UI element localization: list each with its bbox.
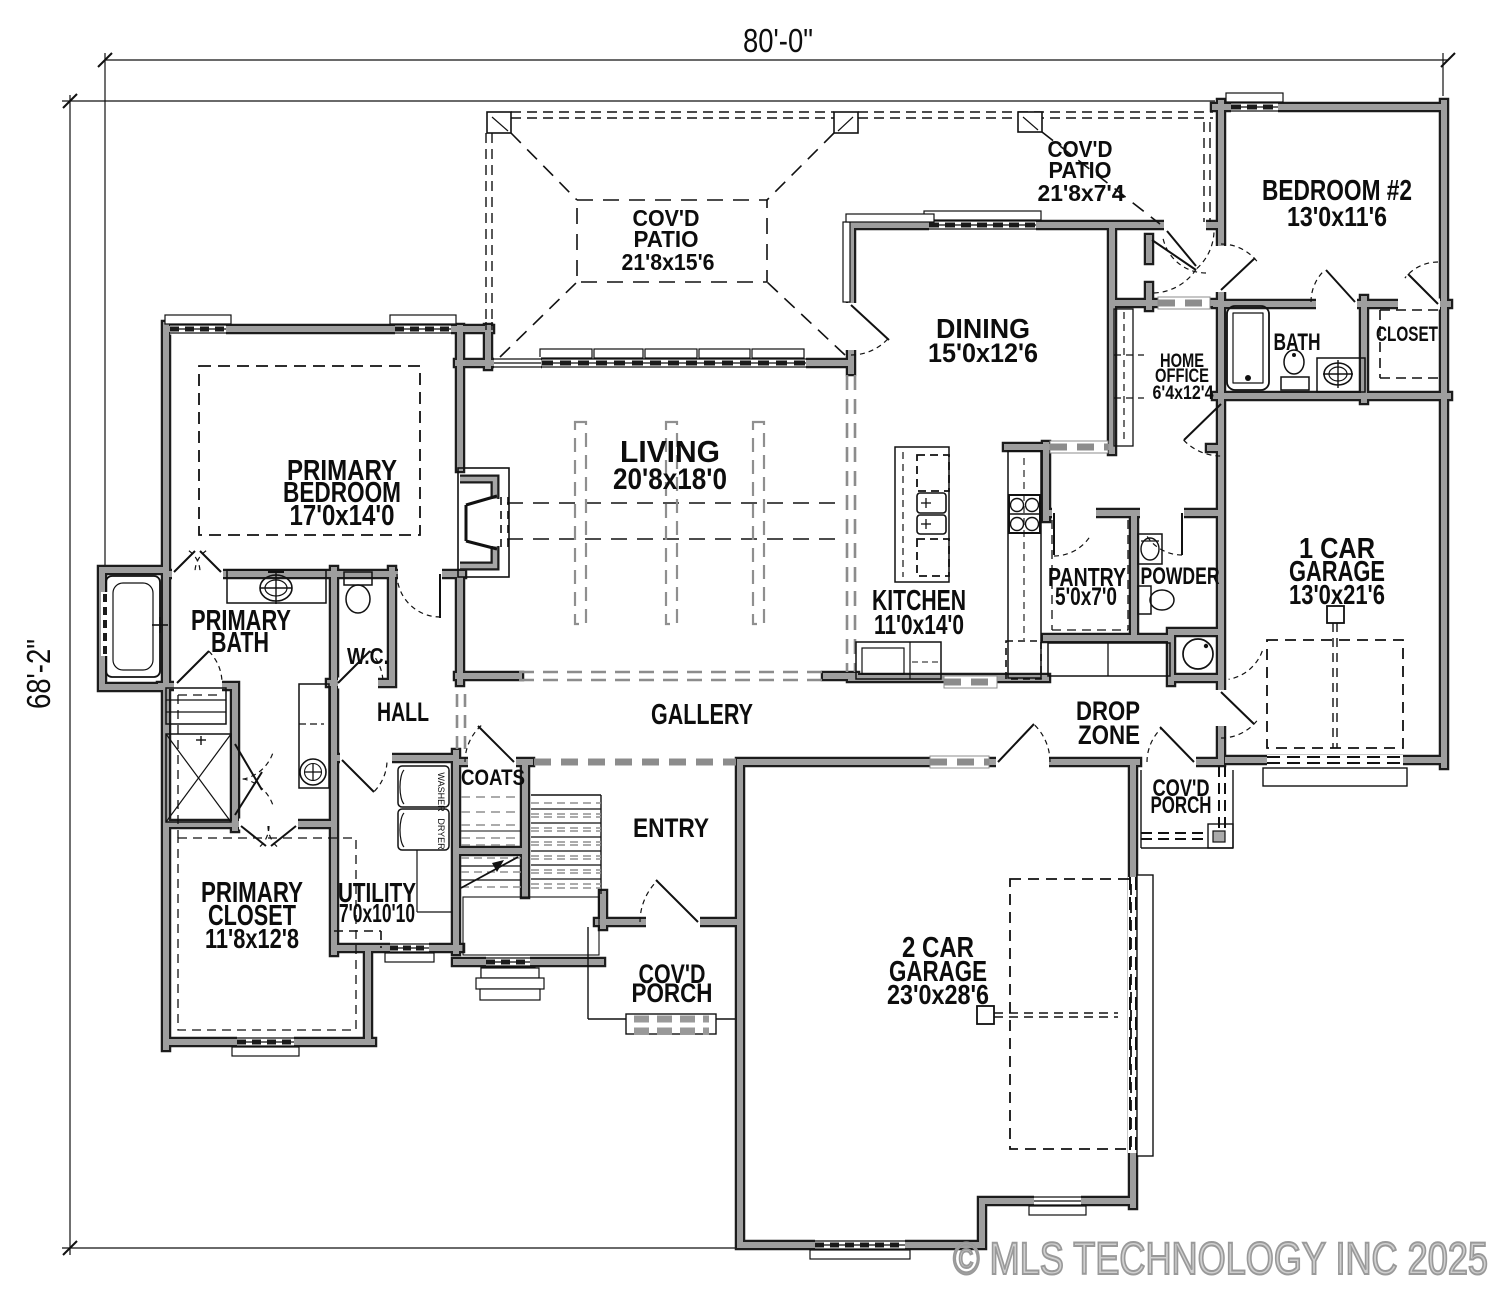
svg-text:WASHER: WASHER [436,772,446,812]
svg-text:POWDER: POWDER [1141,563,1220,590]
svg-text:PORCH: PORCH [1151,792,1212,819]
svg-text:68'-2": 68'-2" [20,639,57,709]
svg-text:BATH: BATH [211,627,269,659]
svg-text:COATS: COATS [461,765,525,790]
svg-text:13'0x21'6: 13'0x21'6 [1289,579,1385,610]
svg-text:DRYER: DRYER [436,818,446,850]
svg-text:GALLERY: GALLERY [651,699,753,731]
svg-text:80'-0": 80'-0" [743,22,813,59]
svg-text:21'8x15'6: 21'8x15'6 [622,249,715,275]
svg-text:HALL: HALL [377,697,429,727]
svg-text:ENTRY: ENTRY [633,813,709,843]
svg-text:W.C.: W.C. [347,643,389,669]
svg-text:PORCH: PORCH [632,978,713,1008]
svg-text:13'0x11'6: 13'0x11'6 [1287,201,1387,232]
svg-text:7'0x10'10: 7'0x10'10 [339,898,415,928]
svg-text:15'0x12'6: 15'0x12'6 [928,338,1038,368]
svg-text:© MLS TECHNOLOGY INC 2025: © MLS TECHNOLOGY INC 2025 [953,1233,1488,1284]
svg-text:20'8x18'0: 20'8x18'0 [613,463,727,496]
svg-text:11'8x12'8: 11'8x12'8 [205,923,299,954]
svg-text:BATH: BATH [1274,329,1321,356]
svg-text:21'8x7'4: 21'8x7'4 [1038,180,1125,206]
svg-text:6'4x12'4: 6'4x12'4 [1153,383,1214,404]
svg-text:23'0x28'6: 23'0x28'6 [887,979,989,1010]
svg-text:CLOSET: CLOSET [1376,323,1438,346]
svg-text:17'0x14'0: 17'0x14'0 [290,500,395,532]
svg-text:ZONE: ZONE [1078,720,1140,750]
svg-text:11'0x14'0: 11'0x14'0 [874,609,964,640]
svg-text:5'0x7'0: 5'0x7'0 [1055,583,1117,611]
